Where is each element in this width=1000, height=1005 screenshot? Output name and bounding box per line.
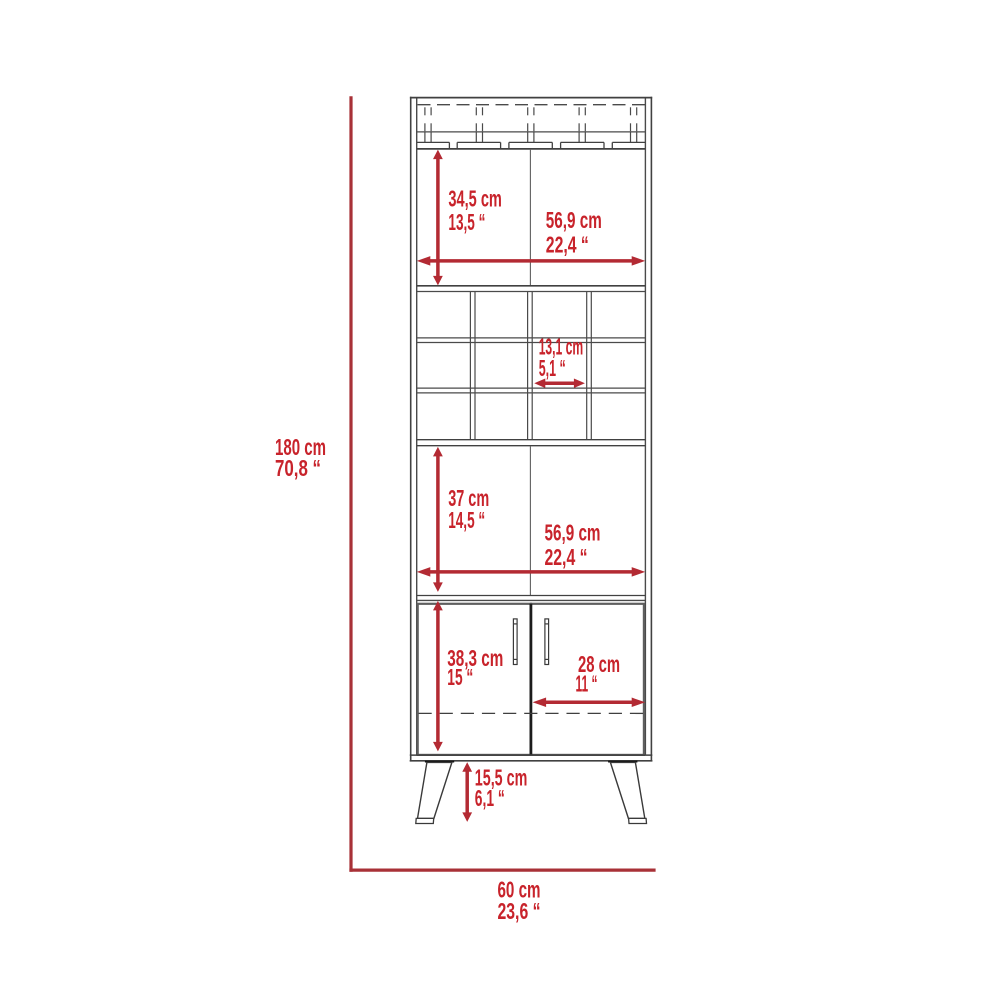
svg-text:14,5 “: 14,5 “ <box>448 507 485 533</box>
svg-text:34,5 cm: 34,5 cm <box>448 186 502 212</box>
svg-text:22,4 “: 22,4 “ <box>545 544 588 570</box>
svg-text:11 “: 11 “ <box>576 670 598 696</box>
svg-text:56,9 cm: 56,9 cm <box>545 519 601 545</box>
svg-text:15 “: 15 “ <box>447 664 473 690</box>
svg-text:70,8 “: 70,8 “ <box>275 455 321 481</box>
svg-text:5,1 “: 5,1 “ <box>539 355 566 381</box>
svg-text:56,9 cm: 56,9 cm <box>546 207 602 233</box>
svg-text:13,5 “: 13,5 “ <box>448 209 485 235</box>
svg-text:22,4 “: 22,4 “ <box>546 231 589 257</box>
svg-text:6,1 “: 6,1 “ <box>475 785 505 811</box>
svg-text:23,6 “: 23,6 “ <box>498 898 541 924</box>
